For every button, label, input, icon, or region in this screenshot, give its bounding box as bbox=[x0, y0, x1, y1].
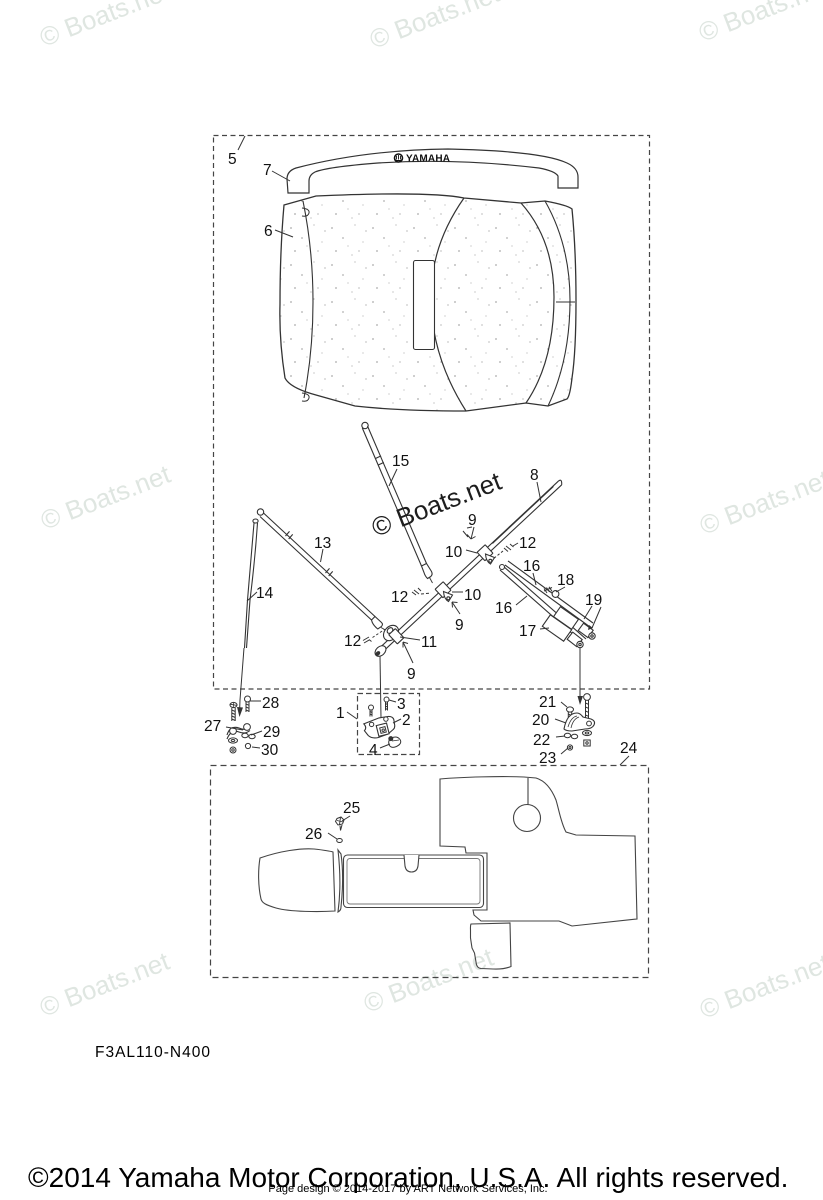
svg-text:15: 15 bbox=[392, 453, 409, 470]
svg-text:30: 30 bbox=[261, 742, 279, 759]
svg-text:14: 14 bbox=[256, 585, 274, 602]
svg-text:11: 11 bbox=[421, 634, 437, 651]
svg-text:19: 19 bbox=[585, 592, 602, 609]
svg-text:9: 9 bbox=[407, 666, 416, 683]
svg-text:28: 28 bbox=[262, 695, 279, 712]
svg-text:© Boats.net: © Boats.net bbox=[365, 0, 504, 55]
svg-text:3: 3 bbox=[397, 696, 406, 713]
svg-text:10: 10 bbox=[445, 544, 463, 561]
svg-text:© Boats.net: © Boats.net bbox=[695, 947, 823, 1024]
svg-text:2: 2 bbox=[402, 712, 411, 729]
svg-text:18: 18 bbox=[557, 572, 574, 589]
svg-text:© Boats.net: © Boats.net bbox=[35, 0, 174, 53]
svg-text:© Boats.net: © Boats.net bbox=[695, 463, 823, 540]
svg-text:© Boats.net: © Boats.net bbox=[35, 945, 174, 1022]
svg-text:© Boats.net: © Boats.net bbox=[694, 0, 823, 48]
svg-text:16: 16 bbox=[523, 558, 540, 575]
svg-text:25: 25 bbox=[343, 800, 360, 817]
svg-text:27: 27 bbox=[204, 718, 221, 735]
svg-text:© Boats.net: © Boats.net bbox=[36, 458, 175, 535]
svg-text:12: 12 bbox=[391, 589, 408, 606]
svg-text:© Boats.net: © Boats.net bbox=[359, 941, 498, 1018]
svg-text:21: 21 bbox=[539, 694, 556, 711]
svg-text:20: 20 bbox=[532, 712, 550, 729]
svg-text:10: 10 bbox=[464, 587, 482, 604]
svg-text:9: 9 bbox=[455, 617, 464, 634]
svg-text:4: 4 bbox=[369, 742, 378, 759]
svg-text:7: 7 bbox=[263, 162, 272, 179]
svg-text:5: 5 bbox=[228, 151, 237, 168]
svg-text:8: 8 bbox=[530, 467, 539, 484]
svg-text:F3AL110-N400: F3AL110-N400 bbox=[95, 1044, 211, 1061]
svg-text:23: 23 bbox=[539, 750, 556, 767]
svg-text:29: 29 bbox=[263, 724, 280, 741]
svg-text:YAMAHA: YAMAHA bbox=[406, 154, 450, 165]
svg-text:26: 26 bbox=[305, 826, 322, 843]
svg-text:12: 12 bbox=[344, 633, 361, 650]
svg-text:12: 12 bbox=[519, 535, 536, 552]
svg-text:Page design © 2014-2017 by ART: Page design © 2014-2017 by ART Network S… bbox=[268, 1183, 547, 1195]
svg-text:17: 17 bbox=[519, 623, 536, 640]
svg-text:9: 9 bbox=[468, 512, 477, 529]
svg-text:22: 22 bbox=[533, 732, 550, 749]
svg-text:16: 16 bbox=[495, 600, 512, 617]
svg-text:© Boats.net: © Boats.net bbox=[367, 465, 506, 542]
svg-text:6: 6 bbox=[264, 223, 273, 240]
svg-text:24: 24 bbox=[620, 740, 638, 757]
svg-text:1: 1 bbox=[336, 705, 345, 722]
